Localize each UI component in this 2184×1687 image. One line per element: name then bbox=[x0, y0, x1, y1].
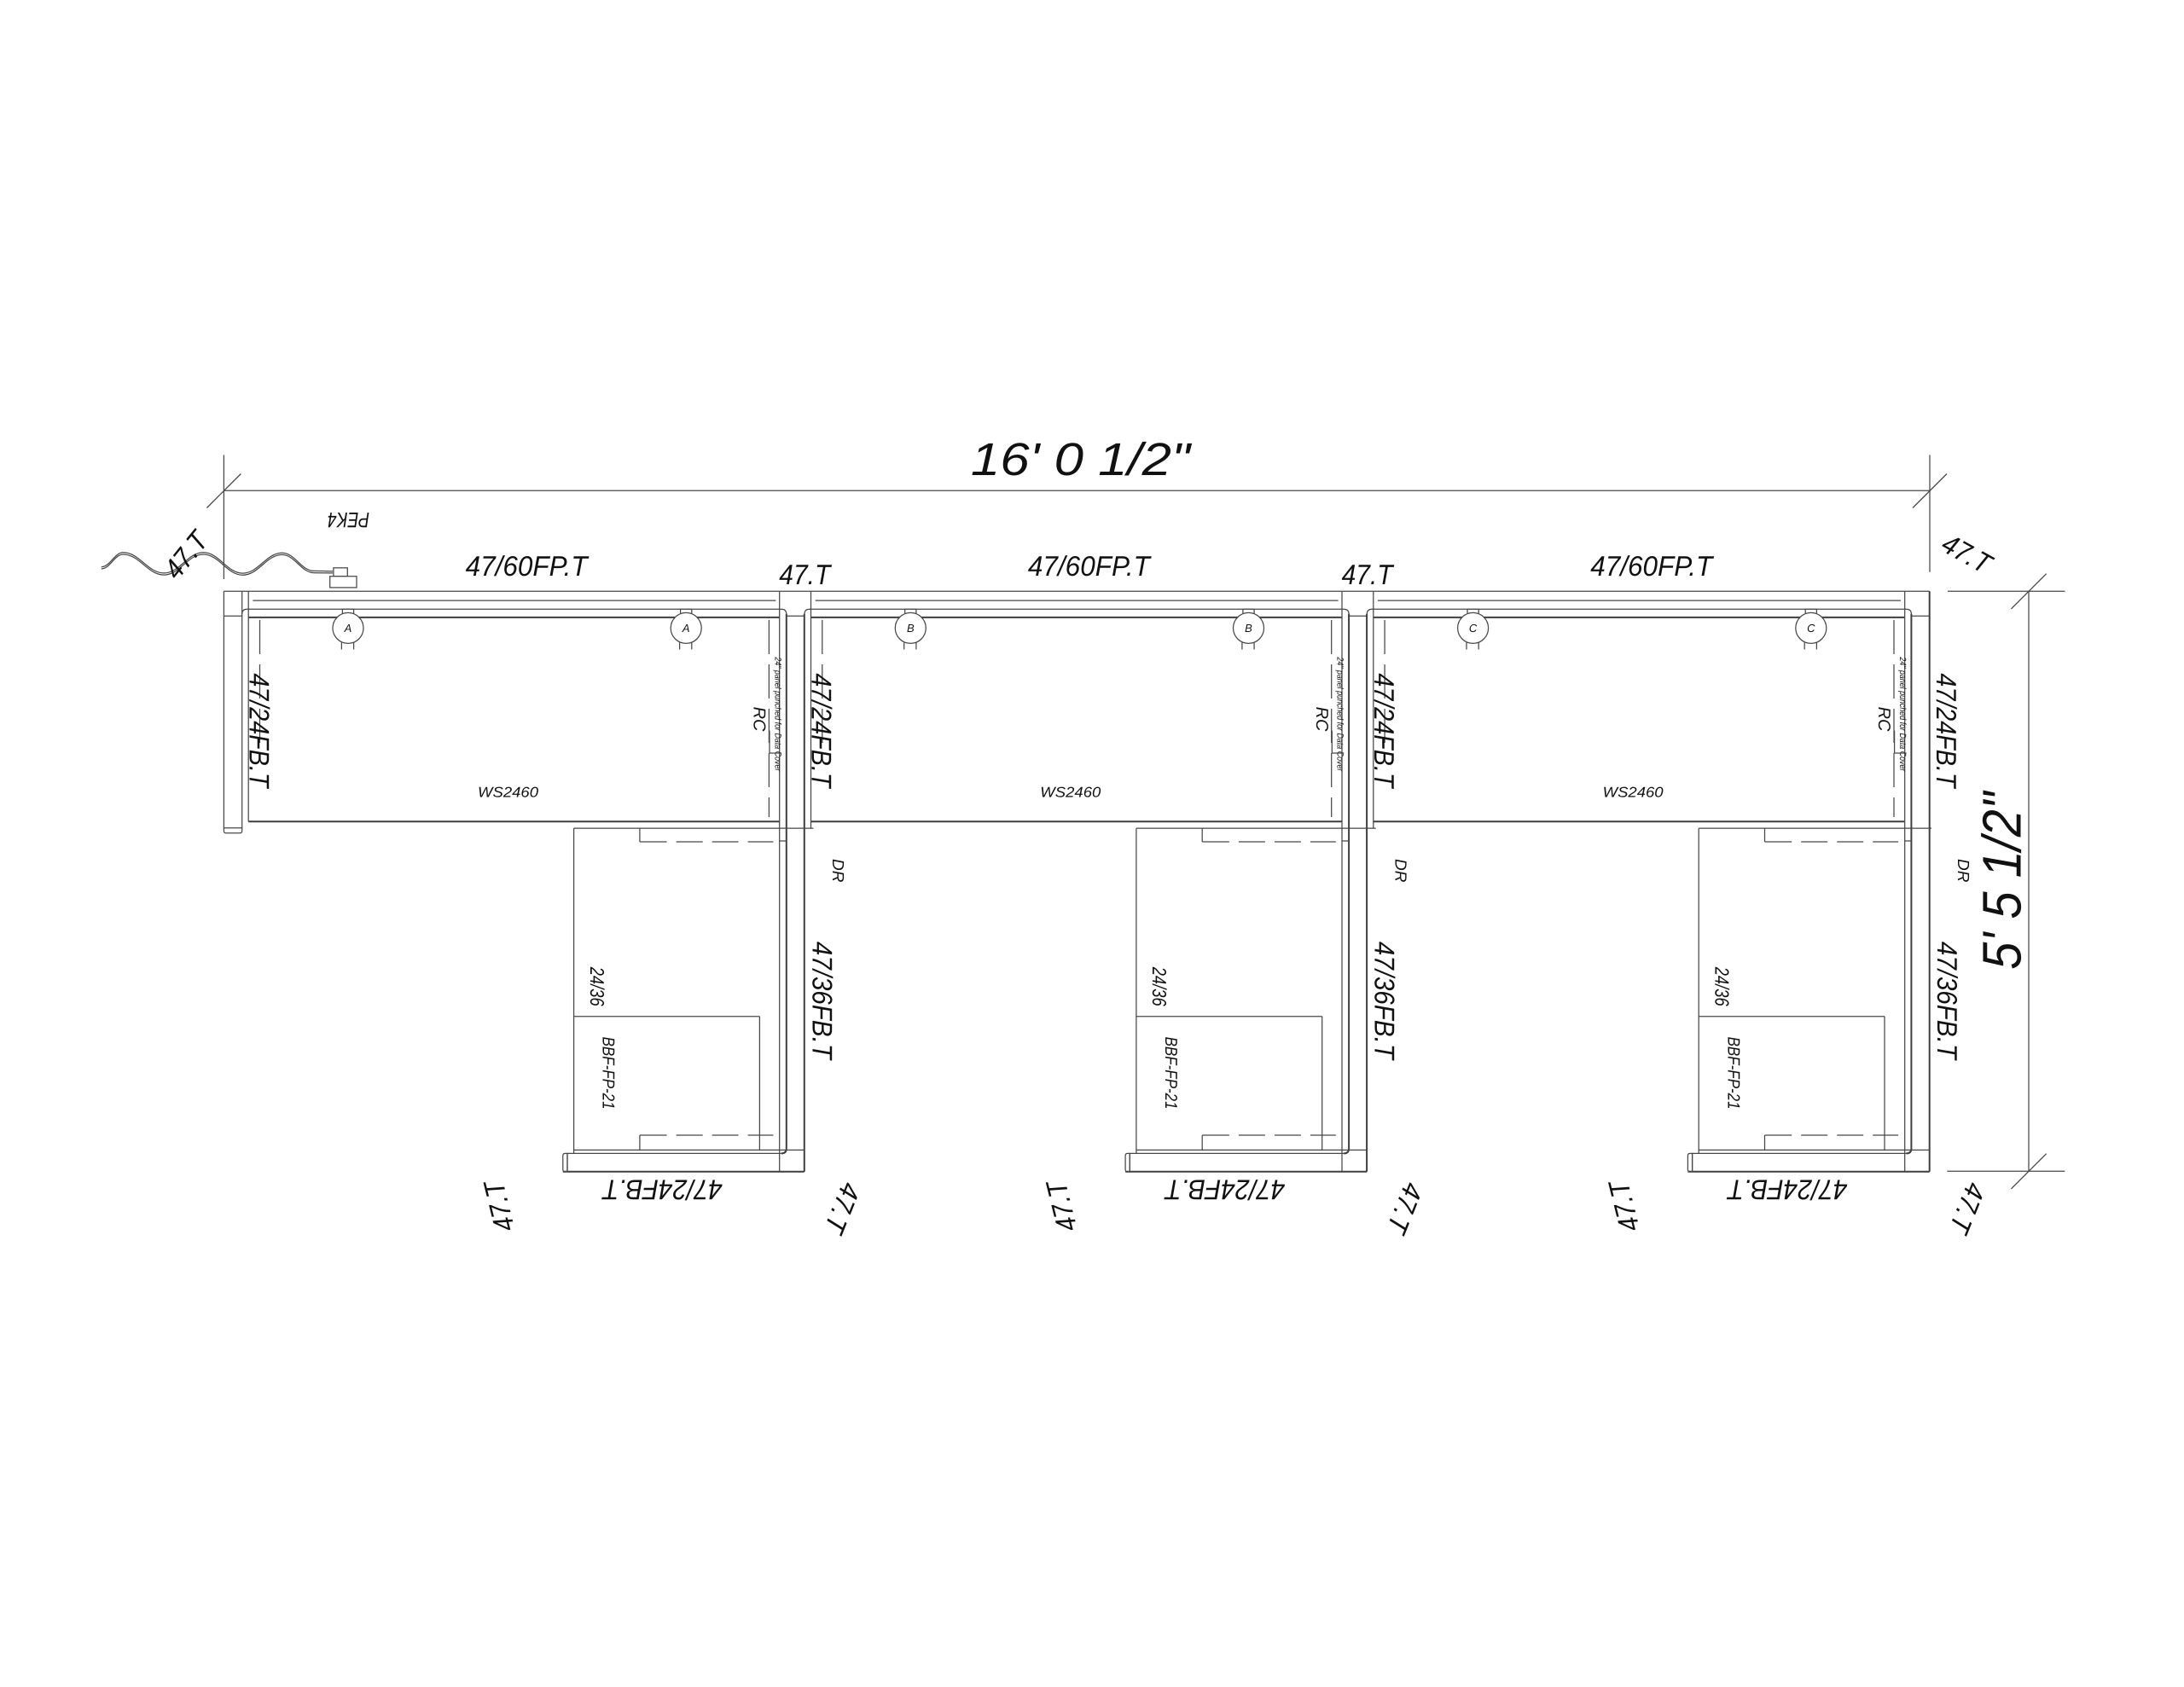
svg-text:47/36FB.T: 47/36FB.T bbox=[806, 942, 838, 1062]
svg-text:BBF-FP-21: BBF-FP-21 bbox=[1161, 1037, 1180, 1110]
svg-text:47.T: 47.T bbox=[1342, 559, 1396, 590]
svg-text:47/60FP.T: 47/60FP.T bbox=[1590, 550, 1715, 582]
svg-text:RC: RC bbox=[1312, 707, 1331, 732]
svg-text:47/60FP.T: 47/60FP.T bbox=[466, 550, 590, 582]
svg-text:C: C bbox=[1469, 622, 1478, 635]
svg-text:DR: DR bbox=[1391, 859, 1409, 883]
svg-text:B: B bbox=[1245, 622, 1252, 635]
svg-text:47/24FB.T: 47/24FB.T bbox=[243, 673, 275, 789]
svg-text:47/24FB.T: 47/24FB.T bbox=[1931, 673, 1962, 789]
svg-text:A: A bbox=[682, 622, 690, 635]
svg-text:24/36: 24/36 bbox=[586, 966, 608, 1006]
svg-text:WS2460: WS2460 bbox=[1603, 785, 1664, 801]
svg-text:24/36: 24/36 bbox=[1148, 966, 1170, 1006]
svg-text:WS2460: WS2460 bbox=[1040, 785, 1101, 801]
svg-text:WS2460: WS2460 bbox=[478, 785, 539, 801]
svg-text:A: A bbox=[344, 622, 352, 635]
svg-text:RC: RC bbox=[750, 707, 769, 732]
svg-text:47/24FB.T: 47/24FB.T bbox=[1726, 1174, 1848, 1206]
svg-text:47/24FB.T: 47/24FB.T bbox=[601, 1174, 723, 1206]
svg-text:C: C bbox=[1807, 622, 1815, 635]
svg-text:47/24FB.T: 47/24FB.T bbox=[1368, 673, 1400, 789]
svg-text:47.T: 47.T bbox=[779, 559, 833, 590]
svg-text:47/24FB.T: 47/24FB.T bbox=[806, 673, 838, 789]
svg-text:24" panel punched for Data Cov: 24" panel punched for Data Cover bbox=[772, 657, 782, 772]
svg-text:BBF-FP-21: BBF-FP-21 bbox=[599, 1037, 618, 1110]
svg-text:RC: RC bbox=[1874, 707, 1893, 732]
svg-text:DR: DR bbox=[1954, 859, 1972, 883]
svg-text:24" panel punched for Data Cov: 24" panel punched for Data Cover bbox=[1897, 657, 1908, 772]
svg-text:PEK4: PEK4 bbox=[328, 507, 369, 531]
svg-text:BBF-FP-21: BBF-FP-21 bbox=[1723, 1037, 1742, 1110]
svg-text:47/36FB.T: 47/36FB.T bbox=[1369, 942, 1401, 1062]
svg-text:B: B bbox=[907, 622, 915, 635]
svg-text:16' 0 1/2": 16' 0 1/2" bbox=[971, 434, 1193, 485]
svg-text:5' 5 1/2": 5' 5 1/2" bbox=[1972, 790, 2033, 970]
svg-text:47/60FP.T: 47/60FP.T bbox=[1028, 550, 1153, 582]
svg-text:24/36: 24/36 bbox=[1711, 966, 1734, 1006]
svg-text:24" panel punched for Data Cov: 24" panel punched for Data Cover bbox=[1335, 657, 1345, 772]
svg-text:DR: DR bbox=[828, 859, 846, 883]
svg-text:47/24FB.T: 47/24FB.T bbox=[1164, 1174, 1286, 1206]
svg-text:47/36FB.T: 47/36FB.T bbox=[1931, 942, 1963, 1062]
